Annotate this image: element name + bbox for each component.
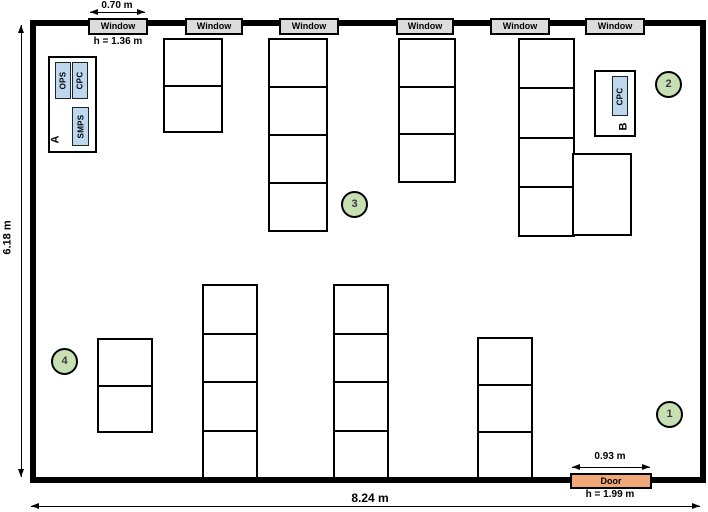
station-b-label: B — [618, 123, 629, 131]
window-6-label: Window — [598, 22, 632, 31]
desk-column-bottom-2 — [202, 284, 258, 480]
device-ops: OPS — [55, 62, 71, 99]
desk-cell — [165, 40, 221, 87]
window-1: Window — [88, 18, 148, 35]
desk-cell — [479, 433, 531, 478]
door-label: Door — [601, 477, 622, 486]
desk-cell — [99, 340, 151, 387]
room-height-label: 6.18 m — [3, 210, 14, 266]
desk-cell — [400, 88, 454, 136]
window-1-label: Window — [101, 22, 135, 31]
desk-column-bottom-3 — [333, 284, 389, 480]
window-width-arrow — [90, 12, 145, 13]
desk-column-top-1 — [163, 38, 223, 133]
desk-cell — [204, 286, 256, 335]
device-smps-label: SMPS — [76, 115, 85, 139]
window-3: Window — [279, 18, 339, 35]
desk-cell — [204, 432, 256, 479]
desk-cell — [165, 87, 221, 132]
room-height-arrow — [21, 25, 22, 477]
desk-cell — [335, 383, 387, 432]
desk-cell — [204, 383, 256, 432]
desk-cell — [400, 40, 454, 88]
device-cpc-b: CPC — [612, 76, 628, 116]
station-a: OPS CPC SMPS A — [48, 56, 97, 153]
desk-cell — [520, 139, 573, 188]
marker-1-label: 1 — [666, 409, 672, 420]
window-2-label: Window — [197, 22, 231, 31]
window-2: Window — [185, 18, 243, 35]
device-cpc-a-label: CPC — [76, 72, 85, 90]
device-cpc-b-label: CPC — [616, 87, 625, 105]
marker-3-label: 3 — [351, 199, 357, 210]
station-a-label: A — [50, 136, 61, 144]
door: Door — [570, 473, 652, 489]
window-4-label: Window — [408, 22, 442, 31]
window-width-label: 0.70 m — [87, 1, 147, 11]
desk-cell — [270, 40, 326, 88]
desk-cell — [270, 88, 326, 136]
desk-column-bottom-4 — [477, 337, 533, 480]
desk-cell — [99, 387, 151, 432]
door-height-label: h = 1.99 m — [575, 490, 645, 500]
marker-1: 1 — [656, 401, 683, 428]
device-ops-label: OPS — [59, 72, 68, 90]
desk-top-4-side — [572, 153, 632, 236]
window-4: Window — [396, 18, 454, 35]
marker-3: 3 — [341, 191, 368, 218]
desk-cell — [335, 286, 387, 335]
desk-cell — [520, 89, 573, 138]
desk-cell — [479, 339, 531, 386]
device-cpc-a: CPC — [72, 62, 88, 99]
marker-2-label: 2 — [665, 79, 671, 90]
marker-4: 4 — [51, 348, 78, 375]
desk-cell — [479, 386, 531, 433]
desk-cell — [400, 135, 454, 181]
desk-column-bottom-1 — [97, 338, 153, 433]
window-height-label: h = 1.36 m — [88, 37, 148, 47]
desk-cell — [520, 40, 573, 89]
desk-column-top-4 — [518, 38, 575, 237]
desk-cell — [574, 155, 630, 234]
door-width-label: 0.93 m — [580, 452, 640, 462]
marker-4-label: 4 — [61, 356, 67, 367]
desk-cell — [335, 432, 387, 479]
desk-column-top-3 — [398, 38, 456, 183]
window-5: Window — [490, 18, 550, 35]
desk-cell — [520, 188, 573, 235]
desk-cell — [270, 136, 326, 184]
window-5-label: Window — [503, 22, 537, 31]
door-width-arrow — [572, 467, 650, 468]
room-width-label: 8.24 m — [340, 492, 400, 504]
window-6: Window — [585, 18, 645, 35]
desk-column-top-2 — [268, 38, 328, 232]
desk-cell — [270, 184, 326, 230]
window-3-label: Window — [292, 22, 326, 31]
station-b: CPC B — [594, 70, 636, 137]
floor-plan: 0.70 m Window Window Window Window Windo… — [0, 0, 708, 512]
desk-cell — [204, 335, 256, 384]
device-smps: SMPS — [72, 107, 89, 146]
desk-cell — [335, 335, 387, 384]
room-width-arrow — [31, 506, 700, 507]
marker-2: 2 — [655, 71, 682, 98]
